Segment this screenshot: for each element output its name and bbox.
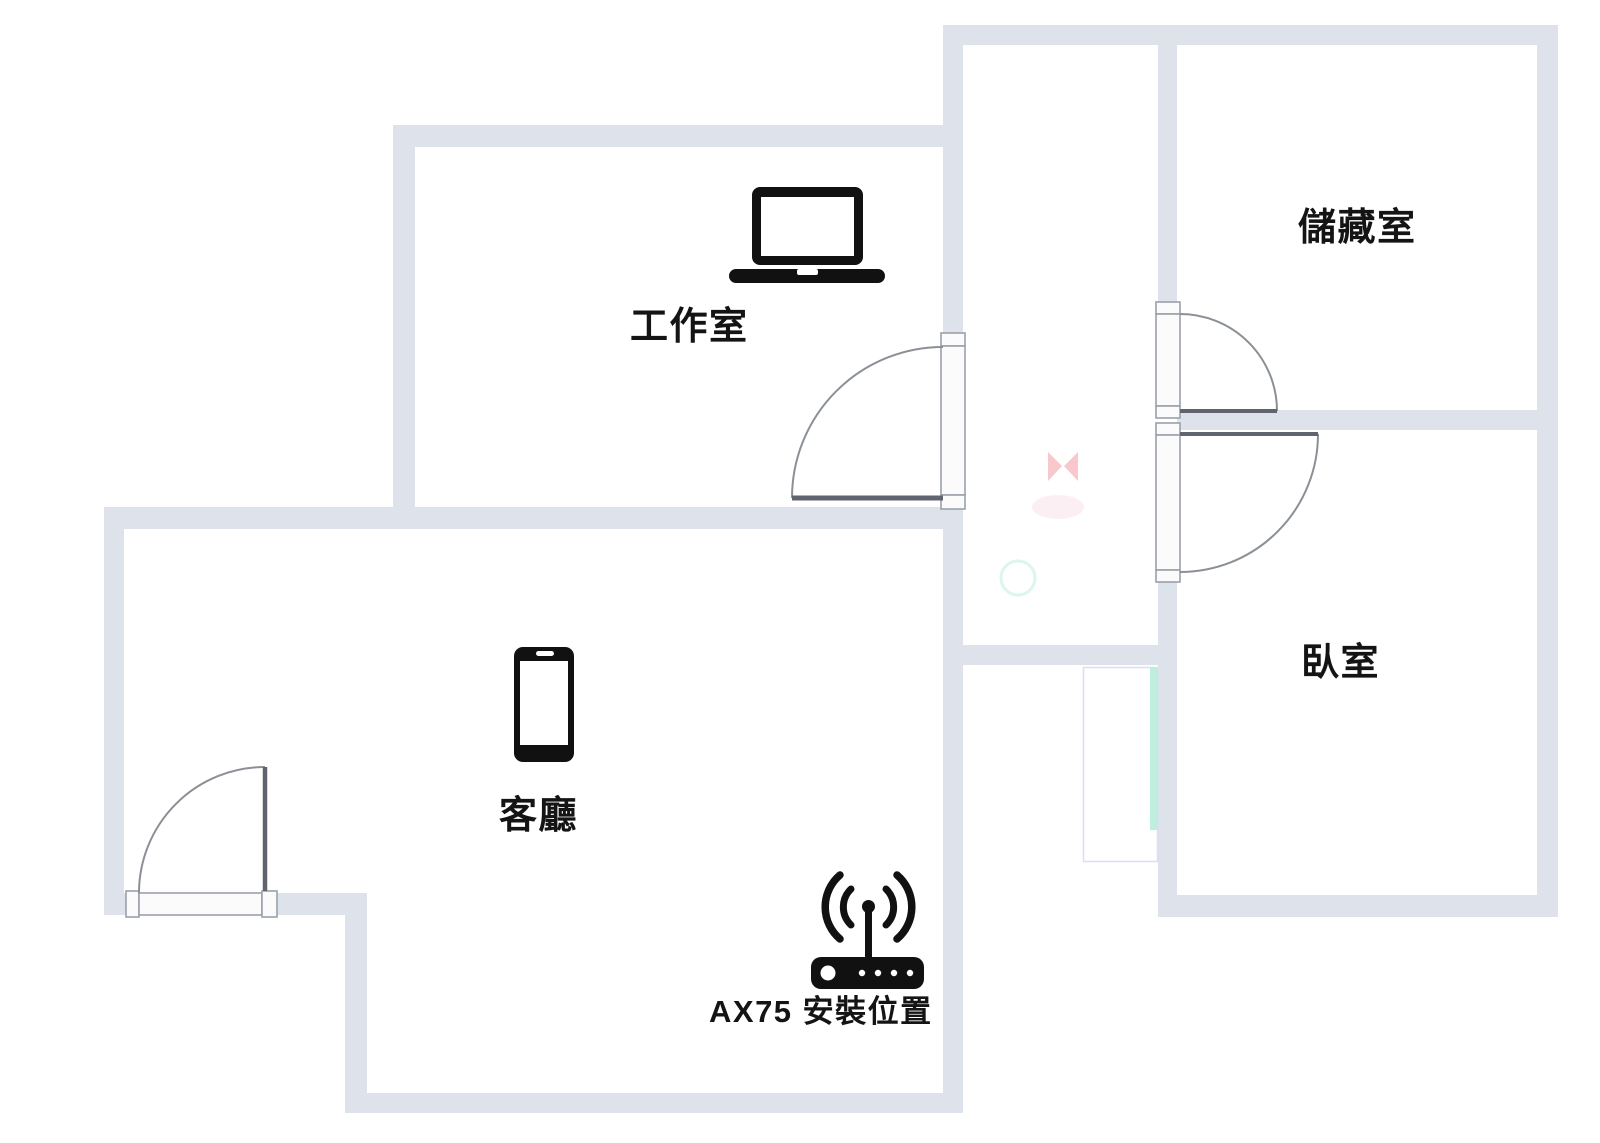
bathroom-remnant-outline	[1084, 668, 1158, 862]
studio-door-jamb-bottom	[941, 495, 965, 509]
wall-lowerleft-vertical	[345, 915, 367, 1093]
entrance-door-opening	[139, 893, 262, 915]
studio-door-arc	[792, 347, 943, 498]
door-arcs	[139, 314, 1318, 893]
phone-screen	[520, 661, 568, 745]
entrance-door-arc	[139, 767, 265, 893]
wall-entrance-right-segment	[277, 893, 367, 915]
bedroom-door-arc	[1180, 434, 1318, 572]
storage-door-jamb-top	[1156, 302, 1180, 314]
laptop-screen	[761, 197, 854, 256]
wifi-wave-left-inner	[843, 889, 851, 925]
router-antenna-ball	[862, 900, 875, 913]
pink-bowtie-remnant	[1048, 452, 1078, 481]
studio-door-opening	[941, 346, 965, 495]
router-led-1	[859, 970, 865, 976]
router-location-label: AX75 安裝位置	[709, 994, 933, 1029]
wall-corridor-left-lower	[943, 508, 963, 1113]
storage-door-opening	[1156, 314, 1180, 406]
wall-divider-lower	[1158, 582, 1177, 915]
bedroom-door-jamb-bottom	[1156, 570, 1180, 582]
wifi-wave-right-outer	[897, 875, 912, 939]
laptop-base-notch	[797, 269, 818, 275]
bedroom-door-opening	[1156, 435, 1180, 570]
wall-right	[1537, 45, 1558, 917]
wall-studio-left	[393, 125, 415, 511]
room-label-bedroom: 臥室	[1301, 641, 1380, 684]
wall-top-band	[943, 25, 1558, 45]
bedroom-door-jamb-top	[1156, 423, 1180, 435]
room-label-storage: 儲藏室	[1298, 206, 1417, 249]
wall-living-left	[104, 507, 124, 915]
router-led-2	[875, 970, 881, 976]
wall-living-top	[104, 507, 943, 529]
phone-speaker	[536, 651, 554, 656]
wall-bedroom-bottom	[1158, 895, 1558, 917]
entrance-door-jamb-left	[126, 891, 139, 917]
entrance-door-jamb-right	[262, 891, 277, 917]
router-led-3	[891, 970, 897, 976]
studio-door-jamb-top	[941, 333, 965, 346]
wall-entrance-left-stub	[104, 893, 128, 915]
room-label-living: 客廳	[499, 794, 578, 837]
bathroom-remnant-mint-strip	[1150, 668, 1157, 830]
wall-bottom	[345, 1093, 963, 1113]
room-label-studio: 工作室	[630, 305, 749, 348]
router-led-4	[907, 970, 913, 976]
wifi-wave-right-inner	[886, 889, 894, 925]
router-led-large	[821, 966, 836, 981]
wall-corridor-bottom	[943, 645, 1177, 665]
wall-corridor-left-upper	[943, 45, 963, 333]
wifi-router-icon	[811, 875, 924, 989]
smartphone-icon	[514, 647, 574, 762]
storage-door-arc	[1180, 314, 1277, 411]
door-frames	[126, 302, 1180, 917]
wifi-wave-left-outer	[825, 875, 840, 939]
pink-text-remnant	[1032, 495, 1084, 519]
mint-circle-remnant	[1001, 561, 1035, 595]
storage-door-jamb-bottom	[1156, 406, 1180, 418]
floor-plan-svg: 工作室 儲藏室 臥室 客廳 AX75 安裝位置	[0, 0, 1600, 1143]
wall-studio-top	[393, 125, 943, 147]
floor-plan-page: 工作室 儲藏室 臥室 客廳 AX75 安裝位置	[0, 0, 1600, 1143]
wall-divider-upper	[1158, 45, 1177, 302]
router-antenna	[865, 908, 872, 960]
laptop-icon	[729, 187, 885, 283]
